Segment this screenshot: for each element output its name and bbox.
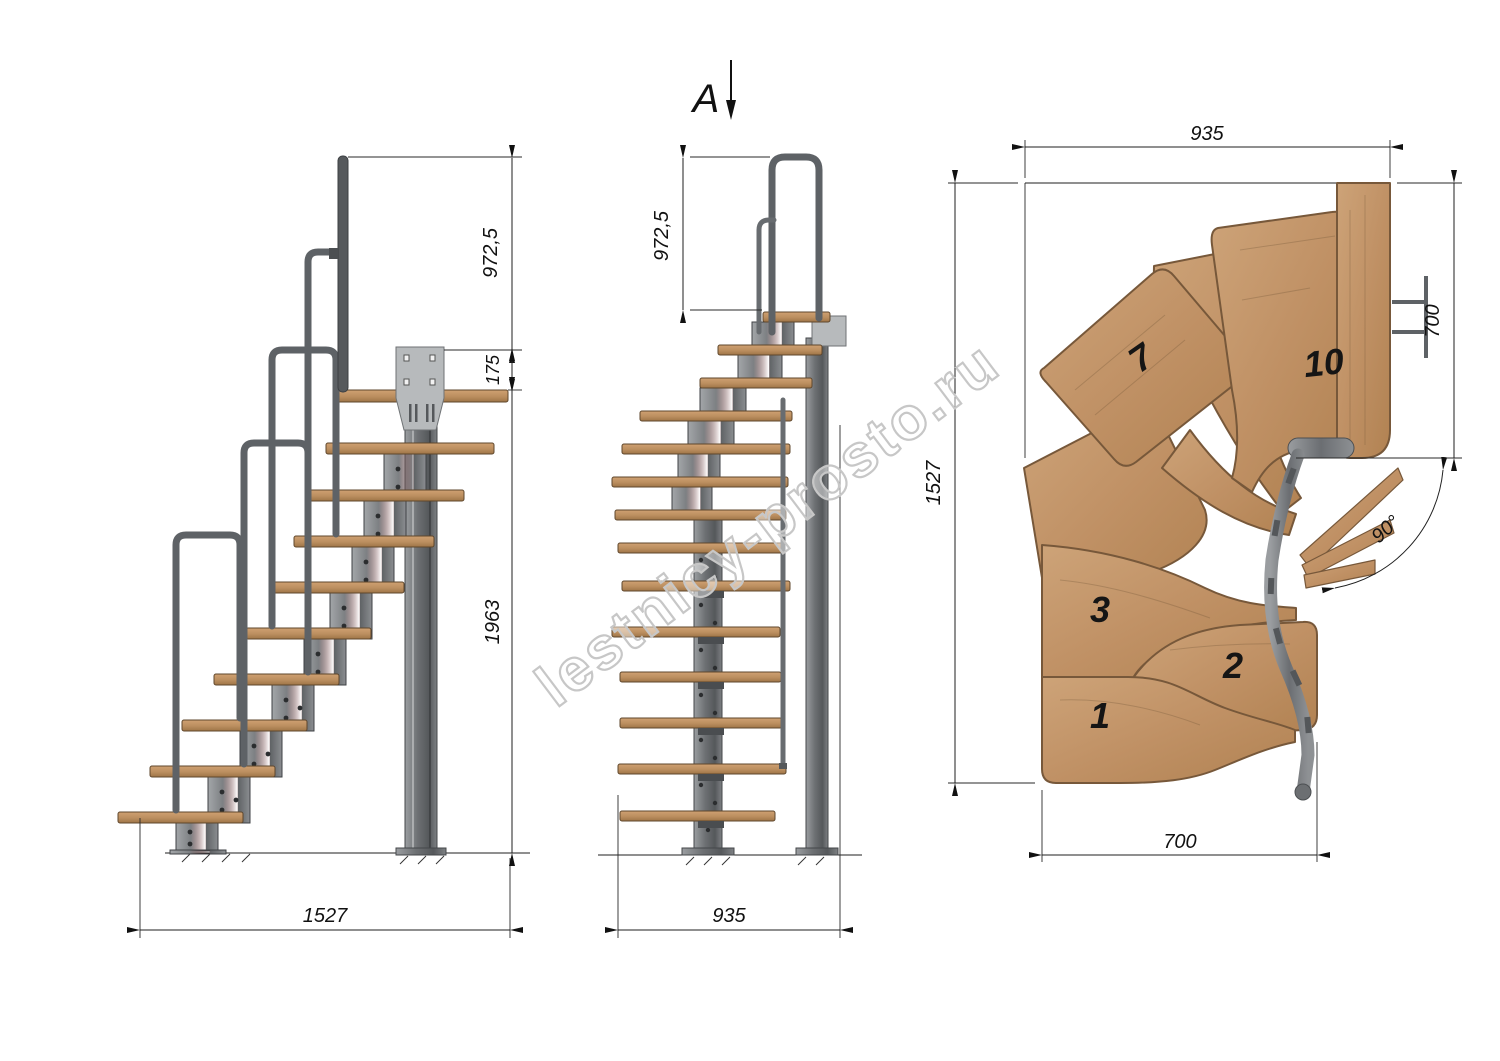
dim-front-width: 935: [712, 905, 746, 927]
tread-number-10: 10: [1302, 340, 1346, 385]
handrail-top-post: [338, 156, 348, 392]
tread-side-9: [326, 443, 494, 454]
tread-number-3: 3: [1090, 589, 1110, 630]
dim-side-plate-offset: 175: [483, 354, 503, 385]
technical-drawing-page: 972,5 175 1963 1527 A: [0, 0, 1500, 1061]
landing-wall-bracket: [1392, 276, 1426, 358]
tread-side-4: [214, 674, 339, 685]
landing-plank: [1337, 183, 1390, 458]
side-modules: [170, 454, 426, 854]
front-rail-loop: [772, 157, 819, 332]
dim-side-column-height: 1963: [482, 600, 504, 645]
dim-front-rail-height: 972,5: [651, 210, 673, 261]
mounting-plate: [396, 347, 444, 430]
tread-side-6: [272, 582, 404, 593]
tread-side-7: [294, 536, 434, 547]
tread-side-1: [118, 812, 243, 823]
tread-number-1: 1: [1090, 695, 1110, 736]
section-label: A: [691, 77, 720, 121]
tread-side-2: [150, 766, 275, 777]
column-base-flange: [396, 848, 446, 855]
front-right-column: [796, 316, 846, 855]
tread-number-2: 2: [1222, 645, 1243, 686]
side-handrail: [176, 156, 348, 810]
side-view: 972,5 175 1963 1527: [118, 156, 530, 938]
dim-plan-top-width: 935: [1190, 123, 1224, 145]
plan-view: 1 2 3 7 10 935 1527 700 700 90°: [923, 123, 1462, 862]
dim-side-rail-height: 972,5: [480, 227, 502, 278]
dim-plan-total-length: 1527: [923, 460, 945, 505]
front-floor-hatch: [686, 857, 824, 865]
dim-side-total-run: 1527: [303, 905, 348, 927]
handrail-bracket: [329, 248, 338, 259]
dim-plan-landing-depth: 700: [1422, 304, 1444, 337]
dim-plan-flight-width: 700: [1163, 831, 1196, 853]
tread-side-8: [306, 490, 464, 501]
section-marker: A: [691, 60, 736, 121]
